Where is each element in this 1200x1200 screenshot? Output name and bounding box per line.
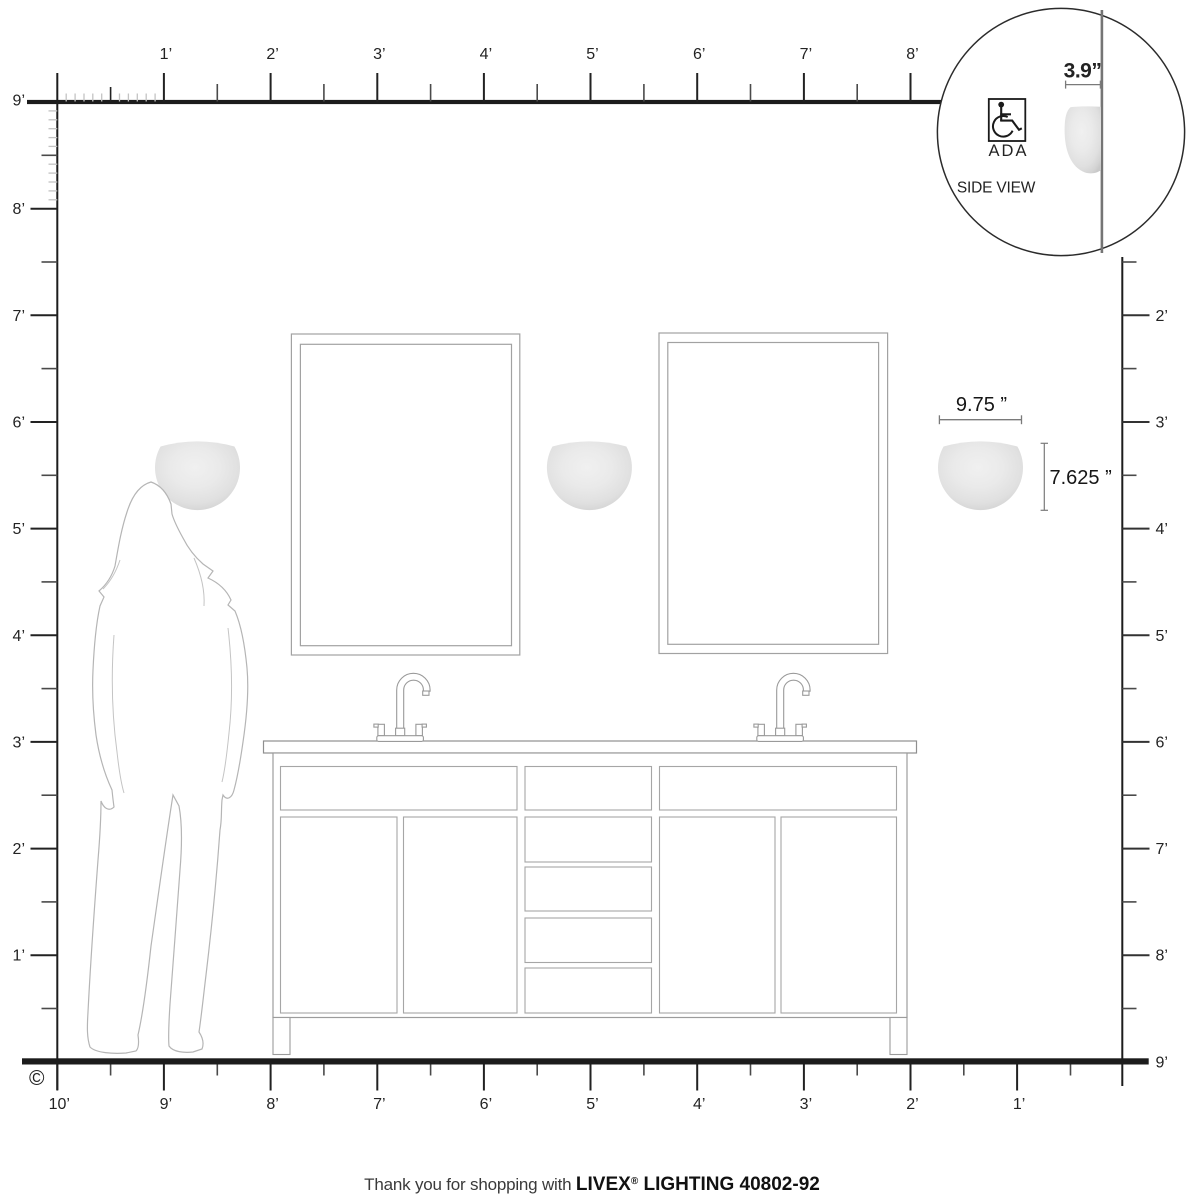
svg-text:©: © [29,1067,45,1090]
svg-text:4’: 4’ [480,46,492,63]
svg-text:7’: 7’ [1156,841,1168,858]
svg-text:4’: 4’ [13,628,25,645]
svg-text:8’: 8’ [266,1096,278,1113]
svg-text:8’: 8’ [906,46,918,63]
svg-text:6’: 6’ [1156,734,1168,751]
svg-text:5’: 5’ [586,46,598,63]
svg-text:2’: 2’ [1156,308,1168,325]
svg-text:9’: 9’ [1156,1054,1168,1071]
svg-text:SIDE VIEW: SIDE VIEW [957,180,1036,197]
svg-text:10’: 10’ [49,1096,70,1113]
svg-text:7’: 7’ [800,46,812,63]
svg-text:2’: 2’ [266,46,278,63]
svg-text:3’: 3’ [373,46,385,63]
svg-text:3’: 3’ [800,1096,812,1113]
svg-text:7.625 ”: 7.625 ” [1050,467,1112,489]
svg-text:5’: 5’ [1156,628,1168,645]
svg-text:6’: 6’ [480,1096,492,1113]
svg-text:2’: 2’ [13,841,25,858]
svg-text:Thank you for shopping with LI: Thank you for shopping with LIVEX® LIGHT… [364,1174,820,1195]
svg-text:6’: 6’ [693,46,705,63]
svg-text:8’: 8’ [1156,948,1168,965]
svg-text:4’: 4’ [1156,521,1168,538]
svg-text:3’: 3’ [1156,415,1168,432]
svg-text:9’: 9’ [160,1096,172,1113]
svg-text:7’: 7’ [13,308,25,325]
svg-text:4’: 4’ [693,1096,705,1113]
svg-text:7’: 7’ [373,1096,385,1113]
svg-text:6’: 6’ [13,415,25,432]
svg-text:3.9”: 3.9” [1064,60,1102,83]
svg-text:9’: 9’ [13,93,25,110]
svg-text:5’: 5’ [13,521,25,538]
svg-text:9.75 ”: 9.75 ” [956,394,1007,416]
svg-text:8’: 8’ [13,201,25,218]
svg-text:1’: 1’ [13,948,25,965]
svg-text:1’: 1’ [160,46,172,63]
svg-text:1’: 1’ [1013,1096,1025,1113]
svg-text:5’: 5’ [586,1096,598,1113]
svg-text:ADA: ADA [989,142,1029,160]
svg-text:2’: 2’ [906,1096,918,1113]
svg-text:3’: 3’ [13,734,25,751]
